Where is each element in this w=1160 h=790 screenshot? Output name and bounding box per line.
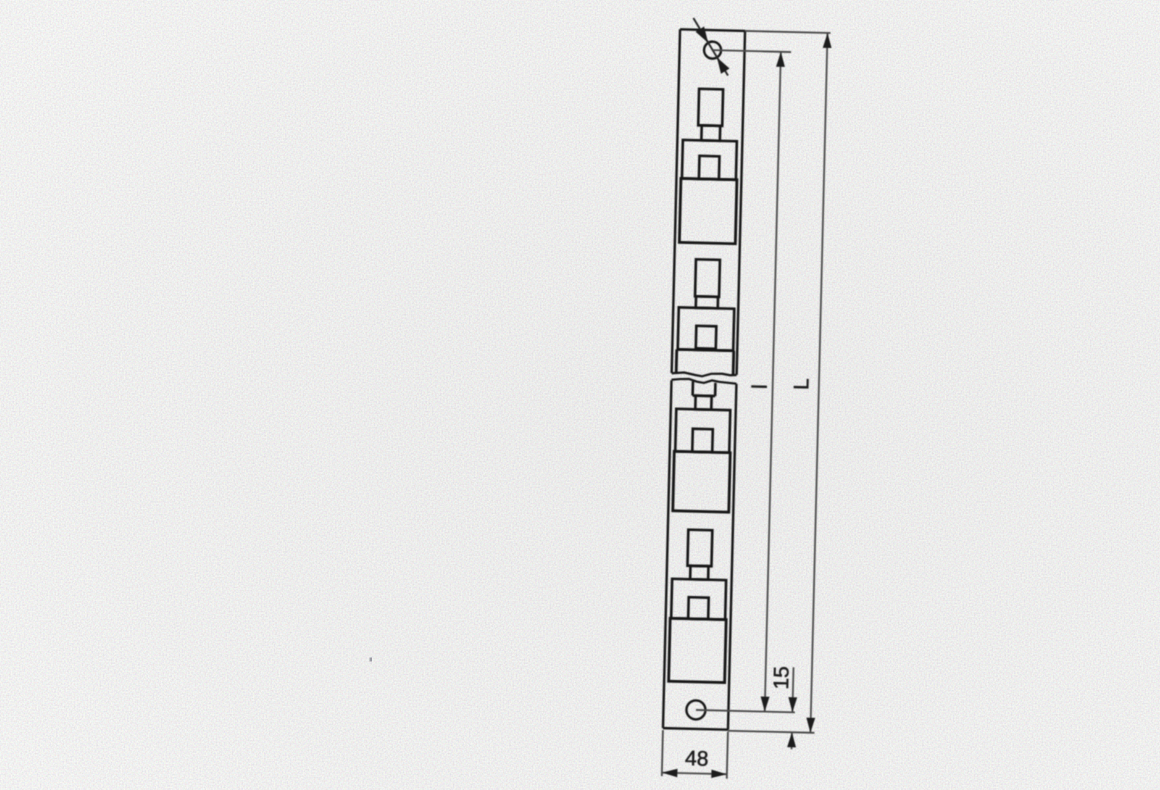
svg-text:l: l — [749, 384, 772, 389]
svg-text:48: 48 — [685, 747, 709, 771]
svg-text:15: 15 — [770, 666, 794, 690]
svg-text:L: L — [790, 378, 813, 390]
